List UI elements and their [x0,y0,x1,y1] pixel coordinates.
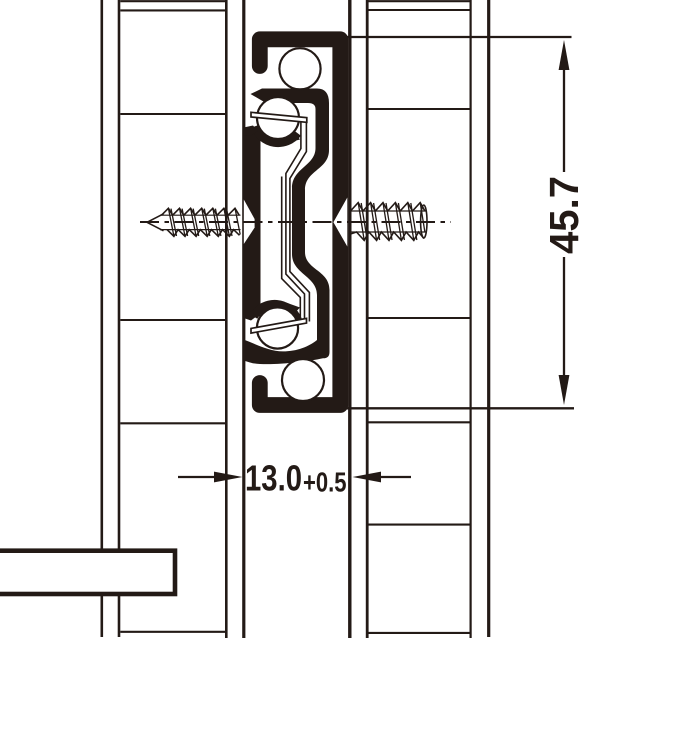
svg-text:45.7: 45.7 [541,176,587,254]
svg-text:+0.5: +0.5 [303,466,347,497]
svg-text:13.0: 13.0 [245,458,302,499]
